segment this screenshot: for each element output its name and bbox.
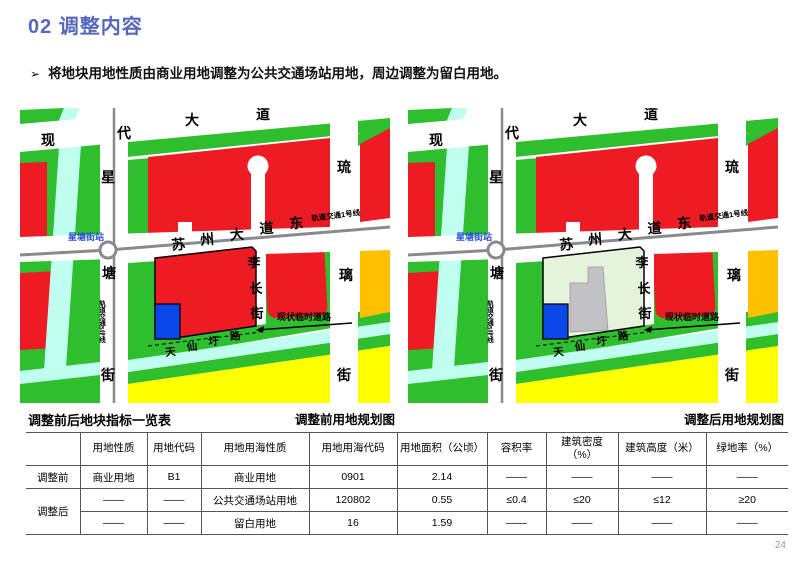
header-blank — [26, 433, 80, 466]
indicator-table: 用地性质 用地代码 用地用海性质 用地用海代码 用地面积（公顷） 容积率 建筑密… — [26, 432, 788, 535]
header-height: 建筑高度（米） — [618, 433, 706, 466]
cell: —— — [147, 512, 201, 535]
cell: ≤20 — [546, 489, 618, 512]
cell: ≤0.4 — [487, 489, 546, 512]
cell: —— — [80, 489, 147, 512]
table-row-before: 调整前 商业用地 B1 商业用地 0901 2.14 —— —— —— —— — [26, 466, 788, 489]
bullet-line: ➢将地块用地性质由商业用地调整为公共交通场站用地，周边调整为留白用地。 — [30, 62, 770, 82]
page-number: 24 — [775, 540, 786, 551]
header-land-code: 用地代码 — [147, 433, 201, 466]
cell: 商业用地 — [80, 466, 147, 489]
cell: —— — [487, 466, 546, 489]
captions-row: 调整前后地块指标一览表 调整前用地规划图 调整后用地规划图 — [0, 407, 800, 429]
cell: ≥20 — [706, 489, 788, 512]
slide: 02 调整内容 ➢将地块用地性质由商业用地调整为公共交通场站用地，周边调整为留白… — [0, 0, 800, 566]
table-header-row: 用地性质 用地代码 用地用海性质 用地用海代码 用地面积（公顷） 容积率 建筑密… — [26, 433, 788, 466]
cell: 公共交通场站用地 — [201, 489, 309, 512]
cell: 2.14 — [397, 466, 487, 489]
caption-map-before: 调整前用地规划图 — [225, 409, 465, 428]
header-far: 容积率 — [487, 433, 546, 466]
table-title: 调整前后地块指标一览表 — [28, 410, 171, 429]
cell: —— — [147, 489, 201, 512]
cell: —— — [618, 512, 706, 535]
cell: —— — [80, 512, 147, 535]
cell: B1 — [147, 466, 201, 489]
header-land-nature: 用地性质 — [80, 433, 147, 466]
row-label-before: 调整前 — [26, 466, 80, 489]
land-use-map-before — [20, 108, 390, 403]
header-area: 用地面积（公顷） — [397, 433, 487, 466]
land-use-map-after — [408, 108, 778, 403]
table-row-after-1: 调整后 —— —— 公共交通场站用地 120802 0.55 ≤0.4 ≤20 … — [26, 489, 788, 512]
cell: —— — [487, 512, 546, 535]
caption-map-after: 调整后用地规划图 — [684, 409, 784, 428]
cell: 1.59 — [397, 512, 487, 535]
page-title: 02 调整内容 — [28, 10, 143, 39]
header-land-sea-code: 用地用海代码 — [309, 433, 397, 466]
header-density: 建筑密度（%） — [546, 433, 618, 466]
header-land-sea-nature: 用地用海性质 — [201, 433, 309, 466]
cell: 0.55 — [397, 489, 487, 512]
header-green-rate: 绿地率（%） — [706, 433, 788, 466]
cell: —— — [706, 466, 788, 489]
cell: —— — [546, 512, 618, 535]
bullet-text: 将地块用地性质由商业用地调整为公共交通场站用地，周边调整为留白用地。 — [48, 66, 507, 81]
cell: 120802 — [309, 489, 397, 512]
cell: ≤12 — [618, 489, 706, 512]
cell: 商业用地 — [201, 466, 309, 489]
table-row-after-2: —— —— 留白用地 16 1.59 —— —— —— —— — [26, 512, 788, 535]
cell: —— — [546, 466, 618, 489]
cell: 16 — [309, 512, 397, 535]
bullet-arrow-icon: ➢ — [30, 67, 40, 81]
cell: 0901 — [309, 466, 397, 489]
row-label-after: 调整后 — [26, 489, 80, 535]
cell: 留白用地 — [201, 512, 309, 535]
cell: —— — [706, 512, 788, 535]
cell: —— — [618, 466, 706, 489]
